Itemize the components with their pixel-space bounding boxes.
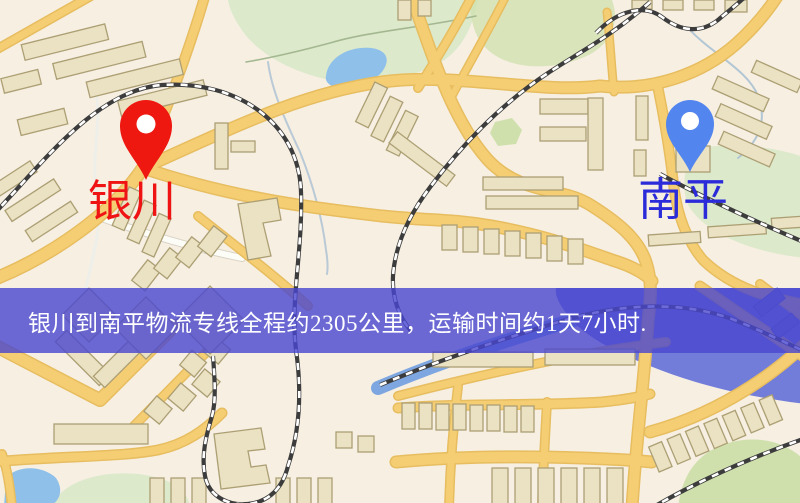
- route-info-banner: 银川到南平物流专线全程约2305公里，运输时间约1天7小时.: [0, 288, 800, 353]
- map-canvas: [0, 0, 800, 503]
- destination-label: 南平: [638, 178, 728, 223]
- origin-pin-hole: [137, 115, 156, 134]
- route-info-text: 银川到南平物流专线全程约2305公里，运输时间约1天7小时.: [28, 304, 647, 338]
- map-viewport[interactable]: 银川 南平 银川到南平物流专线全程约2305公里，运输时间约1天7小时.: [0, 0, 800, 503]
- origin-label: 银川: [88, 180, 176, 224]
- destination-pin-hole: [681, 112, 699, 130]
